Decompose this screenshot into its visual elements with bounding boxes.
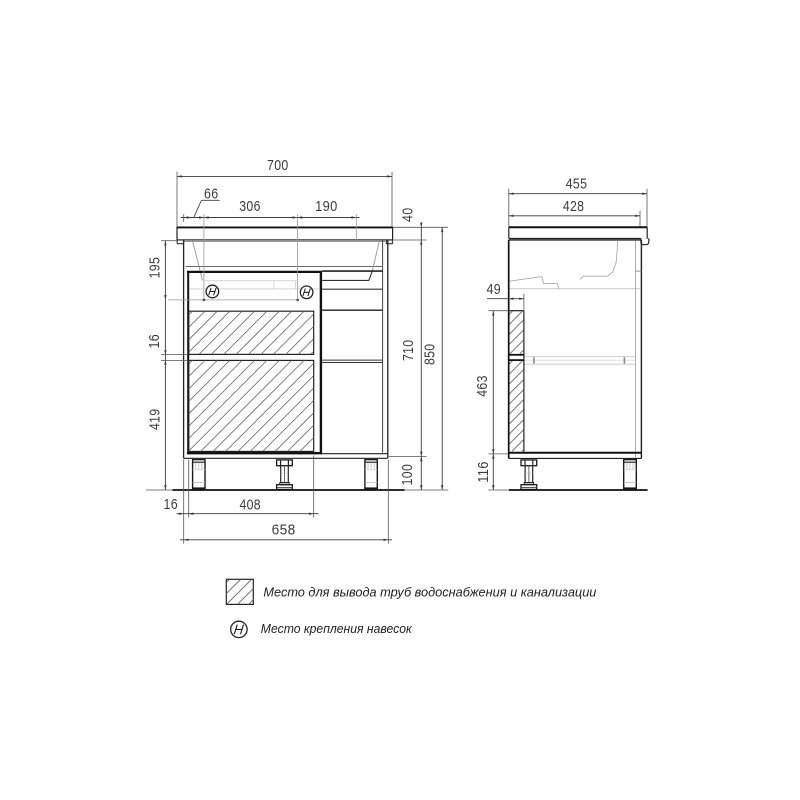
svg-text:428: 428: [563, 198, 585, 215]
svg-text:16: 16: [146, 334, 163, 349]
svg-text:195: 195: [147, 257, 164, 279]
svg-text:658: 658: [272, 522, 296, 539]
svg-text:Место для вывода труб водоснаб: Место для вывода труб водоснабжения и ка…: [263, 584, 596, 599]
svg-text:49: 49: [487, 281, 502, 298]
svg-text:710: 710: [400, 340, 417, 362]
svg-text:16: 16: [164, 496, 179, 513]
svg-text:190: 190: [315, 198, 338, 215]
svg-text:Место крепления навесок: Место крепления навесок: [261, 621, 413, 636]
svg-text:100: 100: [399, 464, 416, 486]
svg-text:306: 306: [239, 198, 261, 215]
svg-text:463: 463: [474, 375, 491, 397]
svg-text:455: 455: [566, 176, 588, 193]
svg-text:850: 850: [422, 344, 439, 366]
svg-text:419: 419: [147, 409, 164, 431]
svg-text:700: 700: [267, 157, 289, 174]
svg-text:116: 116: [475, 461, 492, 483]
svg-text:408: 408: [239, 496, 261, 513]
svg-text:40: 40: [400, 208, 417, 223]
